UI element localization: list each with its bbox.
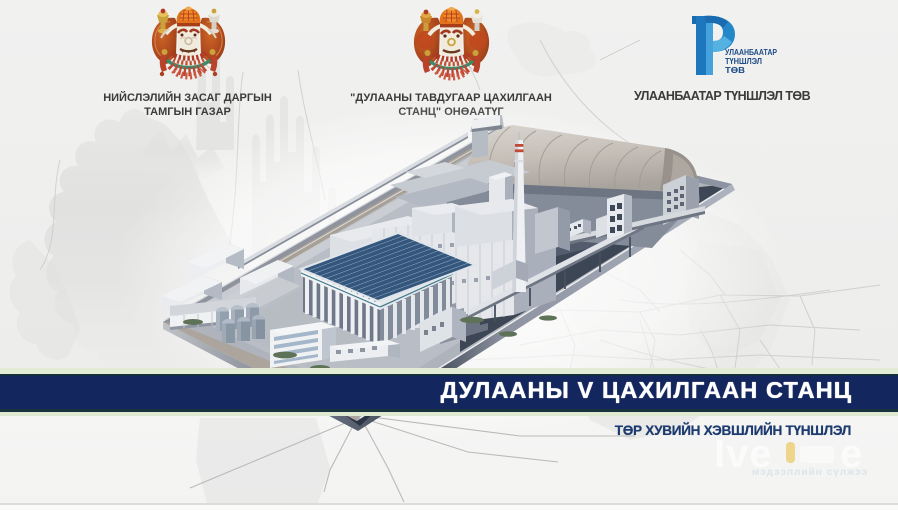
svg-text:ТӨВ: ТӨВ <box>725 66 745 75</box>
svg-text:УЛААНБААТАР: УЛААНБААТАР <box>725 48 777 57</box>
svg-text:ТҮНШЛЭЛ: ТҮНШЛЭЛ <box>725 57 762 66</box>
